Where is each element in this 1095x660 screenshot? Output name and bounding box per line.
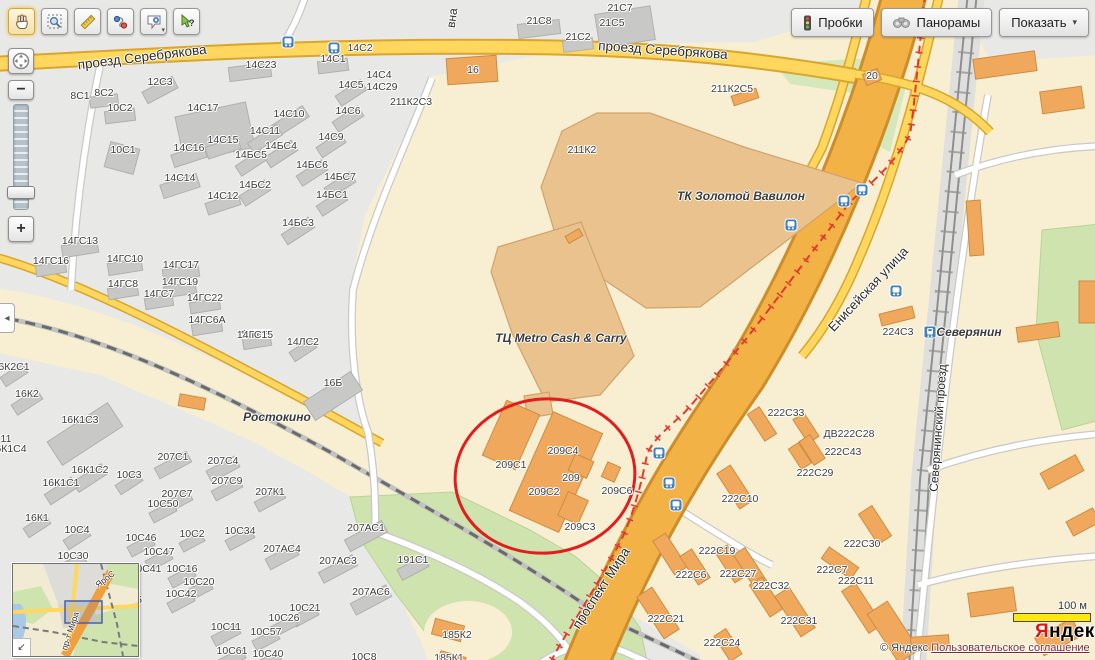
building-label: 222С29 xyxy=(797,467,834,479)
panoramas-button-label: Панорамы xyxy=(916,15,980,30)
building-label: 14С23 xyxy=(246,59,277,71)
collapse-panel-button[interactable]: ◂ xyxy=(0,303,15,333)
inspect-tool-button[interactable]: ? xyxy=(173,8,200,35)
bus-stop-icon[interactable] xyxy=(670,499,683,512)
building-label: 14БС4 xyxy=(265,140,297,152)
building-label: 14С9 xyxy=(318,131,343,143)
panoramas-button[interactable]: Панорамы xyxy=(881,8,992,37)
building-label: 14С6 xyxy=(335,105,360,117)
zoom-in-label: + xyxy=(16,220,25,238)
building-label: 14С4 xyxy=(366,69,391,81)
zoom-out-label: − xyxy=(16,81,25,99)
building-label: 14С15 xyxy=(208,134,239,146)
building-label: 10С46 xyxy=(126,532,157,544)
pan-tool-button[interactable] xyxy=(8,8,35,35)
traffic-button[interactable]: Пробки xyxy=(791,8,874,37)
building-label: 16К1С2 xyxy=(71,464,108,476)
zoom-out-button[interactable]: − xyxy=(8,80,34,100)
building-label: 222С33 xyxy=(768,407,805,419)
bus-stop-icon[interactable] xyxy=(856,184,869,197)
placemark-balloon-icon xyxy=(146,14,162,30)
map-canvas[interactable]: 14С214С114С2314С412С314С514С298С18С2211К… xyxy=(0,0,1095,660)
select-zoom-tool-button[interactable] xyxy=(41,8,68,35)
building-label: 209 xyxy=(562,472,580,484)
building-label: 14С12 xyxy=(208,190,239,202)
building-label: 222С43 xyxy=(825,446,862,458)
building-label: 211К2С5 xyxy=(711,83,753,95)
placemark-dropdown-arrow: ▾ xyxy=(161,28,165,34)
add-placemark-tool-button[interactable]: ▾ xyxy=(140,8,167,35)
building-label: 10С2 xyxy=(179,528,204,540)
bus-stop-icon[interactable] xyxy=(890,285,903,298)
building-label: 14С11 xyxy=(250,125,280,137)
building-label: 14ГС7 xyxy=(144,288,174,300)
minimap-collapse-button[interactable]: ↙ xyxy=(13,638,31,656)
building-label: 16К1 xyxy=(25,512,49,524)
building-label: 21С2 xyxy=(565,31,590,43)
building-label: 209С1 xyxy=(496,459,527,471)
building-label: 10С57 xyxy=(251,626,282,638)
building-label: 14С2 xyxy=(347,42,372,54)
building-label: 10С61 xyxy=(217,645,248,657)
building-label: 207С9 xyxy=(212,475,243,487)
poi-label: Северянин xyxy=(936,325,1001,339)
building-label: 222С10 xyxy=(722,493,759,505)
building-label: 10С30 xyxy=(58,550,89,562)
scale-text: 100 м xyxy=(1058,600,1087,612)
building-label: 14ГС15 xyxy=(237,329,273,341)
building-label: 14БС5 xyxy=(235,149,267,161)
street-label: вна xyxy=(444,7,461,28)
building-label: 222С31 xyxy=(781,615,818,627)
building-label: 10С1 xyxy=(110,144,135,156)
building-label: 10С26 xyxy=(269,612,300,624)
building-label: 207АС6 xyxy=(352,586,390,598)
chevron-down-icon: ▾ xyxy=(1072,17,1077,28)
building-label: 185К1 xyxy=(434,652,463,660)
building-label: 16К1С3 xyxy=(61,414,98,426)
building-label: 14ГС19 xyxy=(162,276,198,288)
yandex-logo-ya: Я xyxy=(1035,621,1049,642)
compass-icon xyxy=(12,52,30,70)
building-label: 14С14 xyxy=(165,172,196,184)
building-label: 14С5 xyxy=(338,79,363,91)
poi-label: Ростокино xyxy=(243,410,311,424)
collapse-diagonal-icon: ↙ xyxy=(17,642,25,653)
ruler-tool-button[interactable] xyxy=(74,8,101,35)
bus-stop-icon[interactable] xyxy=(663,477,676,490)
zoom-slider-handle[interactable] xyxy=(7,186,35,199)
building-label: 21С8 xyxy=(526,15,551,27)
minimap-canvas xyxy=(13,564,138,656)
building-label: 16 xyxy=(467,64,479,76)
show-dropdown-button[interactable]: Показать ▾ xyxy=(999,8,1089,37)
building-label: 16Б xyxy=(324,377,343,389)
building-label: 14С1 xyxy=(320,53,345,65)
building-label: 191С1 xyxy=(398,554,429,566)
building-label: 6К1С4 xyxy=(0,443,27,455)
building-label: 222С19 xyxy=(699,545,736,557)
building-label: 14БС2 xyxy=(239,179,271,191)
train-station-icon[interactable] xyxy=(924,326,937,339)
ruler-icon xyxy=(80,14,96,30)
building-label: 10С40 xyxy=(253,648,284,660)
cursor-question-icon: ? xyxy=(179,14,195,30)
building-label: 14БС7 xyxy=(324,171,356,183)
building-label: 21С7 xyxy=(607,2,632,14)
building-label: 222С27 xyxy=(720,568,757,580)
route-icon xyxy=(113,14,129,30)
building-label: 207АС1 xyxy=(347,522,385,534)
building-label: 14ЛС2 xyxy=(287,336,319,348)
zoom-control: − + xyxy=(8,48,34,242)
building-label: 10С3 xyxy=(116,469,141,481)
building-label: 222С32 xyxy=(753,580,790,592)
building-label: 207АС3 xyxy=(319,555,357,567)
building-label: 222С6 xyxy=(676,569,707,581)
bus-stop-icon[interactable] xyxy=(653,447,666,460)
building-label: 14С29 xyxy=(367,81,398,93)
collapse-arrow-icon: ◂ xyxy=(4,313,9,324)
bus-stop-icon[interactable] xyxy=(328,42,341,55)
magnifier-selection-icon xyxy=(47,14,63,30)
building-label: 209С6 xyxy=(602,485,633,497)
building-label: 14ГС6А xyxy=(188,314,225,326)
building-label: 20 xyxy=(866,70,878,82)
yandex-logo-rest: ндекс xyxy=(1049,621,1095,642)
building-label: 14БС6 xyxy=(296,159,328,171)
svg-text:?: ? xyxy=(189,18,195,28)
poi-label: ТК Золотой Вавилон xyxy=(677,189,805,203)
copyright-line: © Яндекс Пользовательское соглашение xyxy=(880,642,1090,654)
topright-buttons: Пробки Панорамы Показать ▾ xyxy=(791,8,1089,37)
building-label: 14С10 xyxy=(274,108,305,120)
building-label: 14С16 xyxy=(174,142,205,154)
terms-link[interactable]: Пользовательское соглашение xyxy=(931,642,1089,654)
binoculars-icon xyxy=(893,16,910,29)
building-label: 224С3 xyxy=(883,326,914,338)
traffic-light-icon xyxy=(803,15,812,31)
poi-label: ТЦ Metro Cash & Carry xyxy=(495,331,626,345)
minimap[interactable]: пр-т МираЯроС ↙ xyxy=(12,563,139,657)
building-label: 207С1 xyxy=(158,451,189,463)
building-label: 222С24 xyxy=(704,637,741,649)
building-label: 21С5 xyxy=(599,17,624,29)
traffic-button-label: Пробки xyxy=(818,15,862,30)
building-label: 14ГС8 xyxy=(108,278,138,290)
building-label: 10С8 xyxy=(351,651,376,660)
route-tool-button[interactable] xyxy=(107,8,134,35)
bus-stop-icon[interactable] xyxy=(785,219,798,232)
copyright-text: © Яндекс xyxy=(880,642,928,654)
building-label: 14БС1 xyxy=(316,189,348,201)
building-label: 14С17 xyxy=(188,102,219,114)
building-label: 10С47 xyxy=(144,546,175,558)
toolbar: ▾ ? xyxy=(8,8,200,35)
building-label: 14ГС16 xyxy=(33,255,69,267)
building-label: 209С4 xyxy=(548,445,579,457)
zoom-in-button[interactable]: + xyxy=(8,216,34,242)
building-label: 185К2 xyxy=(442,629,471,641)
building-label: 10С20 xyxy=(184,576,215,588)
building-label: 14ГС22 xyxy=(187,292,223,304)
building-label: 207АС4 xyxy=(263,543,301,555)
building-label: 10С42 xyxy=(166,588,197,600)
building-label: 14ГС17 xyxy=(163,259,199,271)
yandex-logo[interactable]: Яндекс xyxy=(1035,621,1095,643)
bus-stop-icon[interactable] xyxy=(838,195,851,208)
building-label: 14ГС10 xyxy=(107,253,143,265)
building-label: 14ГС13 xyxy=(62,235,98,247)
building-label: 10С4 xyxy=(64,524,89,536)
building-label: 8С1 xyxy=(70,90,89,102)
compass-button[interactable] xyxy=(8,48,34,74)
building-label: 10С2 xyxy=(107,102,132,114)
building-label: 10С11 xyxy=(211,621,241,633)
building-label: 207К1 xyxy=(255,486,284,498)
building-label: 10С34 xyxy=(225,525,256,537)
building-label: 16К2 xyxy=(15,388,39,400)
hand-icon xyxy=(14,14,30,30)
building-label: 16К1С1 xyxy=(42,477,79,489)
building-label: 222С30 xyxy=(844,538,881,550)
building-label: 8С2 xyxy=(94,87,113,99)
bus-stop-icon[interactable] xyxy=(282,36,295,49)
building-label: 222С21 xyxy=(648,613,685,625)
show-button-label: Показать xyxy=(1011,15,1066,30)
building-label: 211К2 xyxy=(568,144,597,156)
building-label: 6К2С1 xyxy=(0,361,30,373)
building-label: 14БС3 xyxy=(282,217,314,229)
building-label: 12С3 xyxy=(147,76,172,88)
building-label: ДВ222С28 xyxy=(824,428,875,440)
building-label: 209С3 xyxy=(565,521,596,533)
building-label: 209С2 xyxy=(529,486,560,498)
building-label: 222С11 xyxy=(838,575,874,587)
building-label: 10С50 xyxy=(148,498,179,510)
building-label: 211К2С3 xyxy=(390,96,432,108)
building-label: 10С16 xyxy=(167,563,198,575)
building-label: 207С4 xyxy=(208,455,239,467)
